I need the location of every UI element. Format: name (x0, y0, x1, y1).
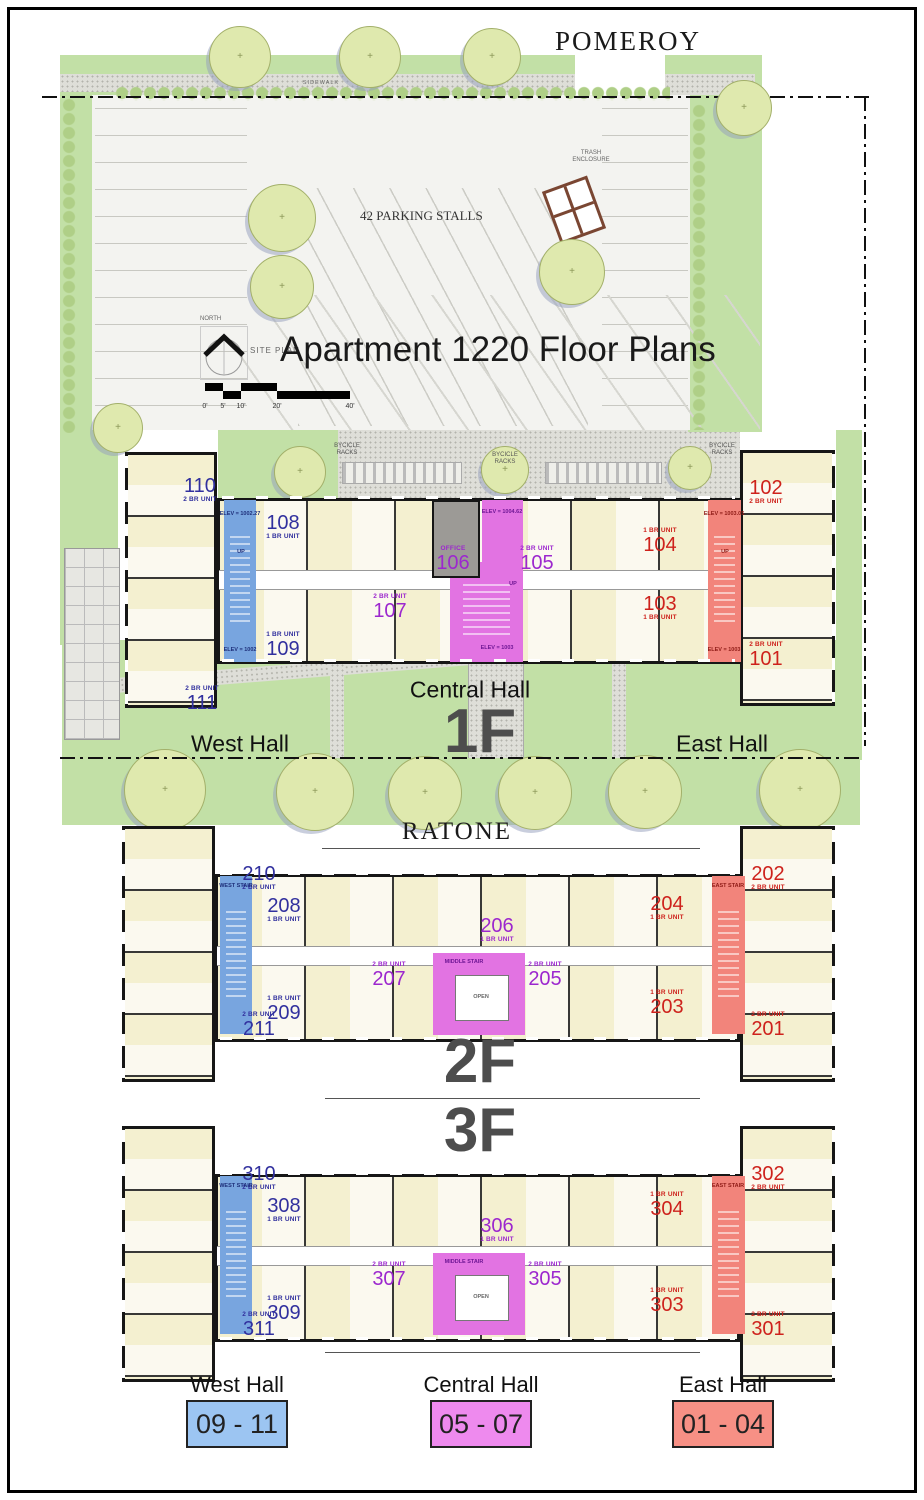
legend-central-hall-range: 05 - 07 (430, 1400, 532, 1448)
floor-label-1f: 1F (444, 701, 516, 763)
section-divider (325, 1352, 700, 1353)
bike-rack (545, 462, 662, 484)
scale-bar: 0' 5' 10' 20' 40' (205, 383, 355, 413)
building-3f-west-wing (122, 1126, 215, 1382)
property-line (42, 96, 870, 98)
windows-3f-west (122, 1130, 125, 1378)
section-divider (322, 848, 700, 849)
legend-west-hall-title: West Hall (147, 1372, 327, 1398)
west-patio (64, 548, 120, 740)
windows-1f-north (222, 496, 735, 499)
bike-rack (342, 462, 462, 484)
courtyard-green (218, 430, 338, 498)
legend-east-hall-title: East Hall (633, 1372, 813, 1398)
property-line-right (864, 96, 866, 746)
east-stair-zone-3f (712, 1176, 745, 1334)
windows-1f-west (125, 456, 128, 704)
east-stair-zone-1f (708, 500, 741, 662)
lawn-path (330, 663, 344, 758)
hedge-column-left (62, 98, 76, 433)
scale-tick: 5' (220, 403, 225, 410)
hedge-column-right (692, 104, 706, 430)
west-hall-label-1f: West Hall (191, 731, 289, 758)
page-title: Apartment 1220 Floor Plans (280, 330, 716, 370)
scale-tick: 20' (272, 403, 281, 410)
sidewalk-label: SIDEWALK (295, 80, 347, 86)
building-1f-east-wing (740, 450, 835, 706)
parking-count-label: 42 PARKING STALLS (360, 208, 483, 224)
street-label-pomeroy: POMEROY (555, 26, 695, 57)
floor-plan-document: TRASH ENCLOSURE SIDEWALK 42 PARKING STAL… (0, 0, 924, 1500)
windows-2f-north (220, 872, 735, 875)
office-room-1f (432, 500, 480, 578)
open-stairwell-3f (455, 1275, 509, 1321)
site-plan: TRASH ENCLOSURE SIDEWALK 42 PARKING STAL… (0, 0, 924, 440)
legend-west-hall-range: 09 - 11 (186, 1400, 288, 1448)
windows-1f-south (222, 659, 735, 662)
scale-tick: 0' (202, 403, 207, 410)
trash-enclosure-label: TRASH ENCLOSURE (568, 150, 614, 164)
lawn-path (612, 663, 626, 758)
scale-tick: 40' (345, 403, 354, 410)
legend-east-hall-range: 01 - 04 (672, 1400, 774, 1448)
building-2f-east-wing (740, 826, 835, 1082)
west-stair-zone-1f (224, 500, 256, 662)
west-stair-zone-2f (220, 876, 252, 1034)
building-2f-west-wing (122, 826, 215, 1082)
north-arrow-icon (200, 326, 248, 380)
windows-1f-east (832, 454, 835, 702)
floor-label-2f: 2F (444, 1031, 516, 1093)
windows-3f-east (832, 1130, 835, 1378)
north-label: NORTH (200, 316, 236, 323)
west-stair-zone-3f (220, 1176, 252, 1334)
open-stairwell-2f (455, 975, 509, 1021)
windows-2f-east (832, 830, 835, 1078)
street-label-ratone: RATONE (395, 818, 519, 846)
sidewalk-top-right (665, 74, 755, 95)
east-hall-label-1f: East Hall (676, 731, 768, 758)
building-3f-east-wing (740, 1126, 835, 1382)
hedge-row (115, 86, 670, 101)
windows-3f-south (220, 1337, 735, 1340)
windows-2f-west (122, 830, 125, 1078)
legend-central-hall-title: Central Hall (391, 1372, 571, 1398)
scale-tick: 10' (236, 403, 245, 410)
floor-label-3f: 3F (444, 1100, 516, 1162)
windows-3f-north (220, 1172, 735, 1175)
building-1f-west-wing (125, 452, 217, 708)
central-elevator-zone-1f-upper (482, 500, 523, 562)
east-stair-zone-2f (712, 876, 745, 1034)
